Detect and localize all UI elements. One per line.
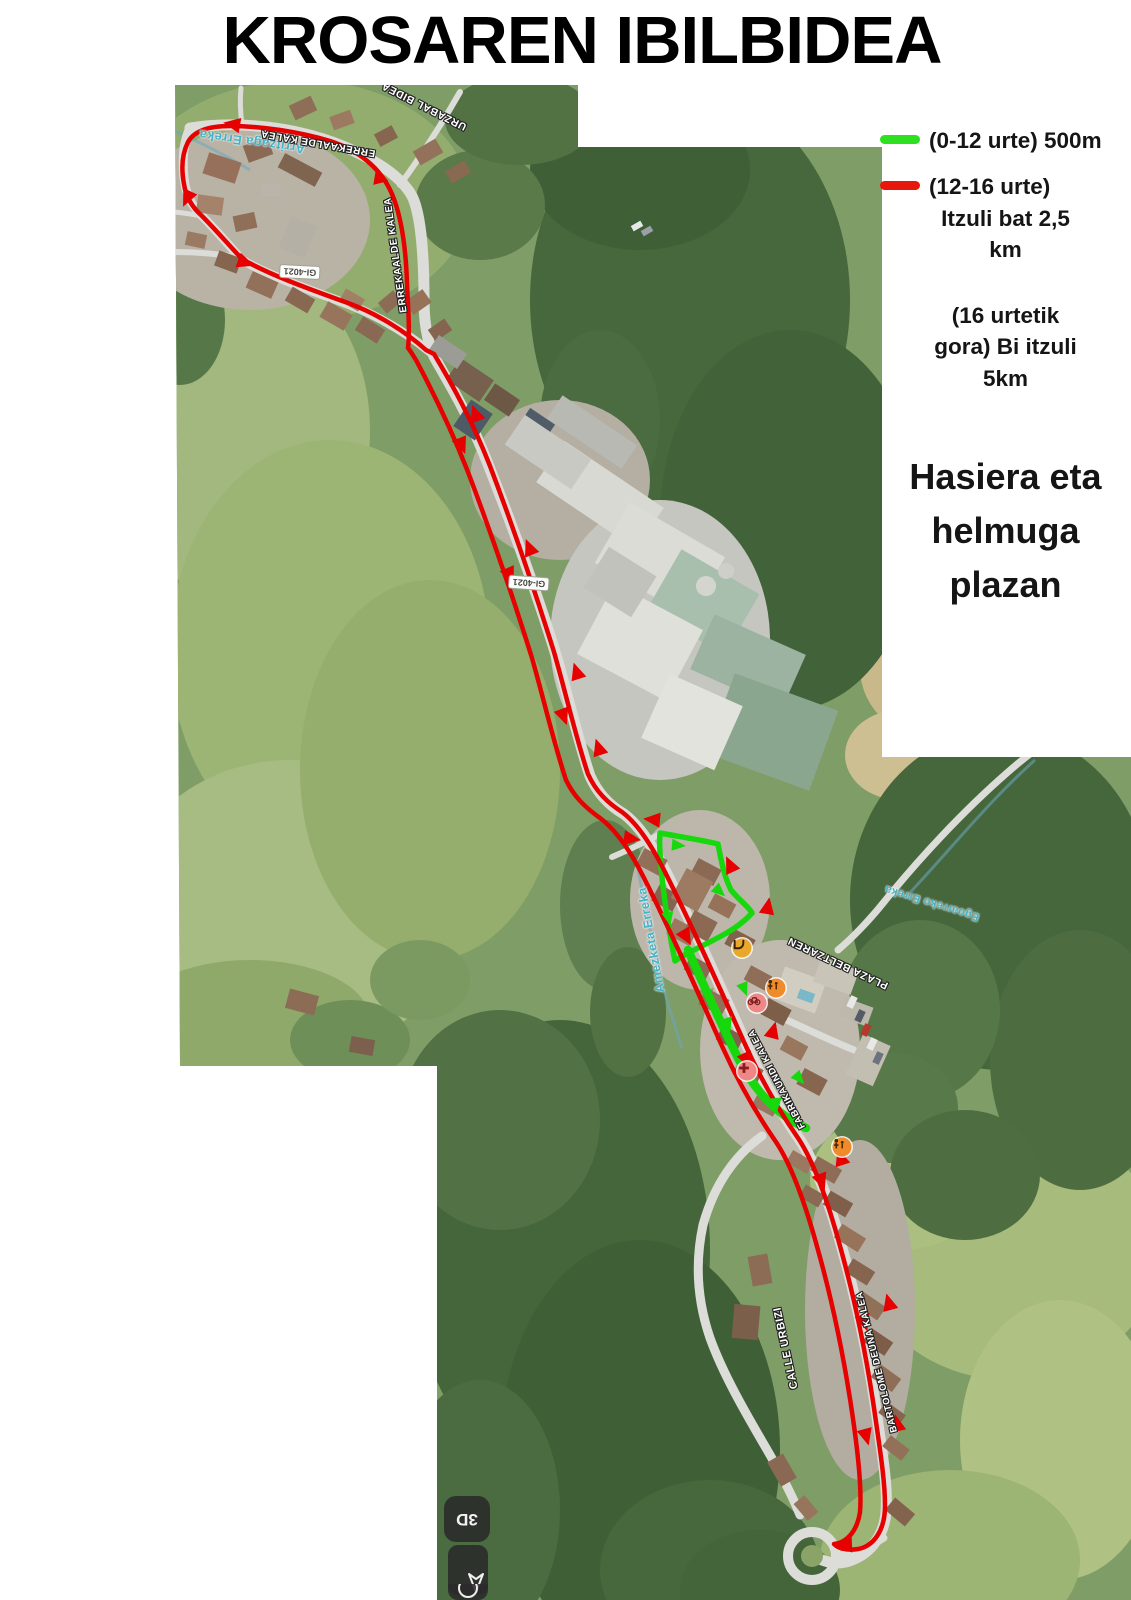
road-shield: GI-4021: [508, 575, 549, 592]
street-label: CALLE URBIZI: [771, 1306, 800, 1390]
legend-teens-label: (12-16 urte): [929, 172, 1050, 202]
page-title: KROSAREN IBILBIDEA: [222, 2, 941, 79]
street-label: ERREKAALDE KALEA: [260, 127, 376, 158]
legend-item-kids: (0-12 urte) 500m: [880, 126, 1131, 156]
start-finish-note: Hasiera eta helmuga plazan: [880, 450, 1131, 612]
legend-teens-distance: Itzuli bat 2,5 km: [880, 203, 1131, 266]
map-3d-label: 3D: [456, 1509, 478, 1529]
pharmacy-icon: [738, 1062, 757, 1081]
waterway-label: Amezketa Erreka: [635, 886, 667, 994]
street-label: FABRIKAUNDI KALEA: [746, 1027, 808, 1130]
street-label: PLAZA BELTZAREN: [786, 934, 890, 991]
legend-kids-label: (0-12 urte) 500m: [929, 126, 1102, 156]
map-extra-button[interactable]: [448, 1584, 488, 1600]
poster-page: { "title": "KROSAREN IBILBIDEA", "legend…: [0, 0, 1131, 1600]
legend-adults-label: (16 urtetik gora) Bi itzuli 5km: [880, 300, 1131, 395]
legend-item-teens: (12-16 urte): [880, 172, 1131, 202]
playground-icon: [767, 979, 786, 998]
map-3d-button[interactable]: 3D: [444, 1496, 490, 1542]
street-label: BARTOLOME DEUNA KALEA: [854, 1290, 900, 1433]
playground-icon: [833, 1138, 852, 1157]
street-label: ERREKAALDE KALEA: [382, 197, 409, 314]
slide-icon: [733, 939, 752, 958]
green-route-swatch: [880, 135, 920, 144]
street-label: URZABAL BIDEA: [379, 79, 468, 132]
waterway-label: Arritzaga Erreka: [198, 127, 306, 157]
waterway-label: Egoarreko Erreka: [883, 883, 980, 923]
route-legend: (0-12 urte) 500m (12-16 urte) Itzuli bat…: [880, 126, 1131, 612]
partial-circle-icon: [458, 1584, 478, 1598]
bicycle-icon: [748, 994, 767, 1013]
road-shield: GI-4021: [279, 264, 320, 280]
red-route-swatch: [880, 181, 920, 190]
